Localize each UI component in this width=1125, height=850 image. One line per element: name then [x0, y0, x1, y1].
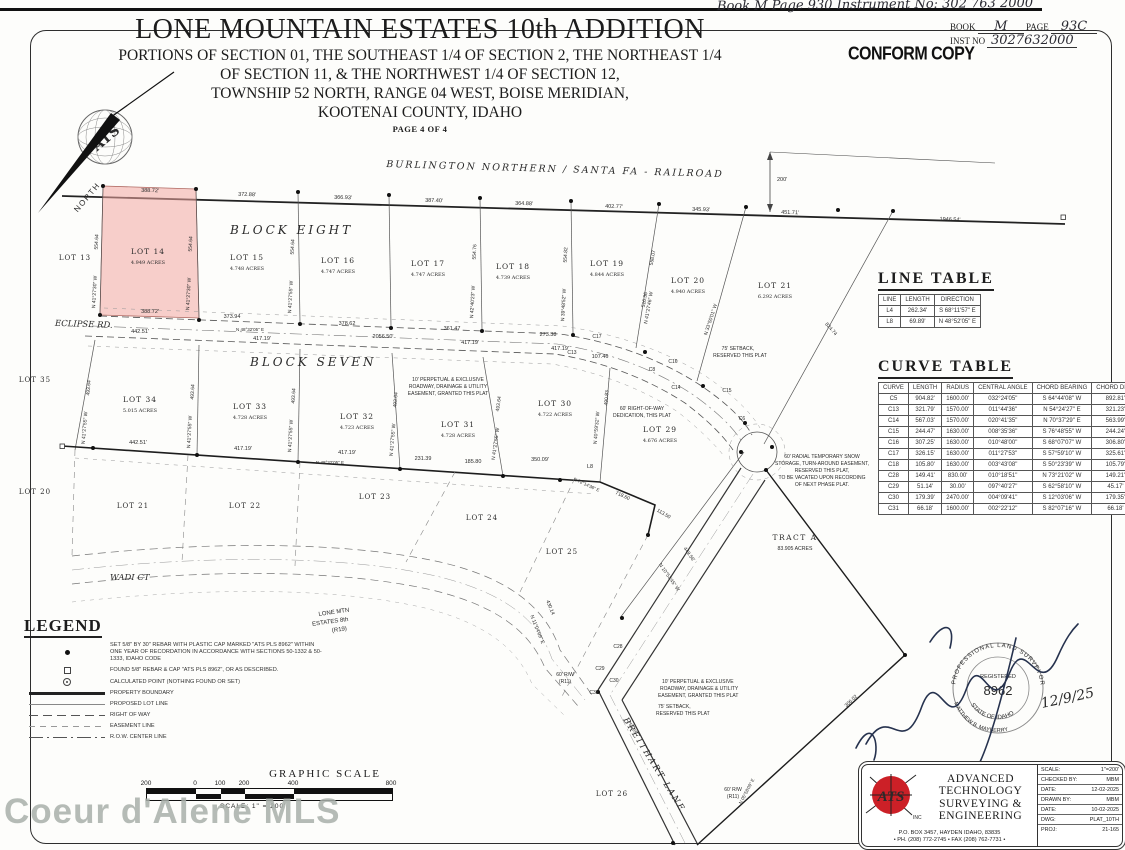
svg-text:EASEMENT, GRANTED THIS PLAT: EASEMENT, GRANTED THIS PLAT	[408, 391, 488, 397]
table-cell: 51.14'	[908, 482, 941, 493]
svg-text:N 41°27'55" W: N 41°27'55" W	[389, 423, 398, 456]
legend-item-text: EASEMENT LINE	[110, 723, 324, 730]
property-boundary-south	[62, 446, 655, 535]
table-cell: 020°41'35"	[974, 416, 1032, 427]
table-cell: 262.34'	[901, 306, 934, 317]
svg-text:N 41°27'55" W: N 41°27'55" W	[81, 411, 90, 444]
svg-text:STORAGE, TURN-AROUND EASEMENT,: STORAGE, TURN-AROUND EASEMENT,	[775, 461, 869, 467]
curve-labels: C17 C13 C16 C8 C14 C15 C6 C28 C29 C30 C3…	[567, 334, 745, 696]
svg-text:417.19': 417.19'	[461, 340, 479, 346]
svg-text:C29: C29	[595, 666, 604, 672]
svg-text:417.19': 417.19'	[234, 446, 252, 452]
svg-text:493.64: 493.64	[190, 384, 197, 400]
legend-item-text: RIGHT OF WAY	[110, 712, 324, 719]
stamp-state: STATE OF IDAHO	[969, 702, 1015, 721]
table-cell: 563.99'	[1092, 416, 1125, 427]
svg-text:LOT 13: LOT 13	[59, 254, 91, 262]
svg-text:(R11): (R11)	[727, 794, 739, 800]
table-header: RADIUS	[942, 383, 974, 394]
svg-text:EASEMENT, GRANTED THIS PLAT: EASEMENT, GRANTED THIS PLAT	[658, 693, 738, 699]
table-cell: C16	[879, 438, 909, 449]
svg-text:N 72°14'36" E: N 72°14'36" E	[573, 476, 601, 492]
svg-text:N 40°59'32" W: N 40°59'32" W	[593, 411, 602, 444]
snow-storage-note: 60' RADIAL TEMPORARY SNOW STORAGE, TURN-…	[775, 454, 869, 488]
svg-text:378.62: 378.62	[339, 321, 356, 327]
block-seven-lot-lines	[75, 340, 744, 618]
table-row: C15244.47'1630.00'008°35'36"S 76°48'55" …	[879, 427, 1125, 438]
table-cell: 306.80'	[1092, 438, 1125, 449]
table-cell: N 54°24'27" E	[1032, 405, 1092, 416]
table-cell: 1630.00'	[942, 427, 974, 438]
table-cell: 567.03'	[908, 416, 941, 427]
svg-text:LOT 15: LOT 15	[230, 253, 264, 262]
svg-text:LOT 29: LOT 29	[643, 425, 677, 434]
svg-text:LOT 34: LOT 34	[123, 395, 157, 404]
svg-text:417.19': 417.19'	[253, 336, 271, 342]
table-cell: 010°48'00"	[974, 438, 1032, 449]
svg-text:LOT 19: LOT 19	[590, 259, 624, 268]
tract-a-label: TRACT A	[772, 533, 817, 542]
table-cell: S 68°07'07" W	[1032, 438, 1092, 449]
svg-text:LOT 21: LOT 21	[117, 502, 149, 510]
table-row: C2951.14'30.00'097°40'27"S 62°58'10" W45…	[879, 482, 1125, 493]
table-cell: 1600.00'	[942, 394, 974, 405]
table-cell: 149.21'	[1092, 471, 1125, 482]
block-seven-label: BLOCK SEVEN	[249, 355, 377, 369]
field-value: 1"=200'	[1101, 767, 1119, 773]
table-header-row: LINE LENGTH DIRECTION	[879, 295, 981, 306]
table-cell: 179.35'	[1092, 493, 1125, 504]
graphic-scale-ticks: 200 0 100 200 400 800	[140, 780, 420, 788]
svg-text:4.747 ACRES: 4.747 ACRES	[321, 269, 356, 275]
svg-text:4.739 ACRES: 4.739 ACRES	[496, 275, 531, 281]
table-cell: 66.18'	[1092, 504, 1125, 515]
svg-text:4.949 ACRES: 4.949 ACRES	[131, 260, 166, 266]
surveyor-signature	[856, 624, 1078, 762]
found-rebar-square-icon	[64, 667, 71, 674]
svg-text:LOT 20: LOT 20	[19, 488, 51, 496]
svg-text:10' PERPETUAL & EXCLUSIVE: 10' PERPETUAL & EXCLUSIVE	[662, 679, 734, 685]
svg-text:417.19': 417.19'	[551, 346, 569, 352]
svg-text:DEDICATION, THIS PLAT: DEDICATION, THIS PLAT	[613, 413, 671, 419]
lot-labels: LOT 144.949 ACRES LOT 154.748 ACRES LOT …	[123, 247, 793, 444]
svg-text:4.844 ACRES: 4.844 ACRES	[590, 272, 625, 278]
svg-text:LOT 18: LOT 18	[496, 262, 530, 271]
svg-text:C28: C28	[613, 644, 622, 650]
table-cell: 66.18'	[908, 504, 941, 515]
field-value: 21-165	[1102, 827, 1119, 833]
svg-text:493.64: 493.64	[85, 380, 92, 396]
svg-text:345.93': 345.93'	[692, 207, 710, 214]
signature-date: 12/9/25	[1040, 685, 1096, 712]
svg-text:75' SETBACK,: 75' SETBACK,	[722, 346, 755, 352]
set-rebar-dot-icon	[65, 650, 70, 655]
table-cell: C31	[879, 504, 909, 515]
svg-text:4.728 ACRES: 4.728 ACRES	[233, 415, 268, 421]
scale-tick: 200	[141, 780, 152, 787]
dimension-labels-mid: 388.72' 373.94 378.62 361.47 273.38 442.…	[131, 309, 608, 360]
railroad-line	[62, 196, 1065, 224]
table-cell: 010°18'51"	[974, 471, 1032, 482]
svg-text:824.74: 824.74	[823, 322, 838, 338]
table-cell: 003°43'08"	[974, 460, 1032, 471]
table-cell: 830.00'	[942, 471, 974, 482]
field-value: MBM	[1106, 797, 1119, 803]
svg-text:554.64: 554.64	[290, 239, 297, 255]
table-cell: 2470.00'	[942, 493, 974, 504]
svg-text:RESERVED THIS PLAT: RESERVED THIS PLAT	[713, 353, 767, 359]
table-cell: 69.89'	[901, 317, 934, 328]
table-header: CURVE	[879, 383, 909, 394]
easement-note-1: 10' PERPETUAL & EXCLUSIVE ROADWAY, DRAIN…	[408, 377, 488, 397]
svg-text:60' RADIAL TEMPORARY SNOW: 60' RADIAL TEMPORARY SNOW	[784, 454, 860, 460]
svg-text:RESERVED THIS PLAT: RESERVED THIS PLAT	[656, 711, 710, 717]
svg-text:N 11°04'09" E: N 11°04'09" E	[528, 614, 545, 645]
mls-watermark: Coeur d'Alene MLS	[4, 792, 340, 832]
svg-text:554.64: 554.64	[94, 234, 101, 250]
legend-title: LEGEND	[24, 616, 102, 638]
found-monument-square	[60, 444, 65, 449]
svg-text:N 41°27'55" W: N 41°27'55" W	[186, 415, 194, 448]
svg-text:N 41°27'55" W: N 41°27'55" W	[287, 419, 295, 452]
surveyor-stamp: PROFESSIONAL LAND SURVEYOR STATE OF IDAH…	[951, 643, 1045, 734]
curve-table-title: CURVE TABLE	[878, 358, 1013, 379]
table-cell: S 57°59'10" W	[1032, 449, 1092, 460]
table-cell: 326.15'	[908, 449, 941, 460]
svg-text:C17: C17	[592, 334, 601, 340]
field-label: DWG:	[1041, 817, 1056, 823]
table-row: C17326.15'1630.00'011°27'53"S 57°59'10" …	[879, 449, 1125, 460]
svg-text:ROADWAY, DRAINAGE & UTILITY: ROADWAY, DRAINAGE & UTILITY	[660, 686, 739, 692]
table-header-row: CURVE LENGTH RADIUS CENTRAL ANGLE CHORD …	[879, 383, 1125, 394]
table-cell: 1630.00'	[942, 438, 974, 449]
svg-text:(R11): (R11)	[559, 679, 571, 685]
table-header: DIRECTION	[934, 295, 980, 306]
easement-line-swatch	[29, 726, 105, 727]
svg-text:LOT 16: LOT 16	[321, 256, 355, 265]
svg-text:1946.54': 1946.54'	[939, 217, 960, 224]
phone-line: • PH. (208) 772-2745 • FAX (208) 762-773…	[862, 837, 1037, 844]
table-cell: 1630.00'	[942, 449, 974, 460]
svg-text:4.940 ACRES: 4.940 ACRES	[671, 289, 706, 295]
company-name: ADVANCED TECHNOLOGY SURVEYING & ENGINEER…	[924, 773, 1037, 823]
table-cell: 1630.00'	[942, 460, 974, 471]
eclipse-rd-label: ECLIPSE RD.	[54, 319, 113, 331]
svg-text:373.94: 373.94	[224, 314, 241, 320]
field-label: DATE:	[1041, 787, 1056, 793]
legend: LEGEND SET 5/8" BY 30" REBAR WITH PLASTI…	[24, 616, 324, 745]
table-cell: C13	[879, 405, 909, 416]
legend-item-text: SET 5/8" BY 30" REBAR WITH PLASTIC CAP M…	[110, 642, 324, 663]
table-cell: N 73°21'02" W	[1032, 471, 1092, 482]
table-cell: S 76°48'55" W	[1032, 427, 1092, 438]
table-row: C3166.18'1600.00'002°22'12"S 82°07'16" W…	[879, 504, 1125, 515]
breithart-lane-label: BREITHART LANE	[620, 715, 687, 814]
svg-text:LOT 30: LOT 30	[538, 399, 572, 408]
svg-text:60' R/W: 60' R/W	[724, 787, 742, 793]
svg-text:558.07: 558.07	[649, 250, 658, 266]
table-cell: 892.81'	[1092, 394, 1125, 405]
table-header: LENGTH	[901, 295, 934, 306]
table-row: L4262.34'S 68°11'57" E	[879, 306, 981, 317]
scale-tick: 200	[239, 780, 250, 787]
svg-text:10' PERPETUAL & EXCLUSIVE: 10' PERPETUAL & EXCLUSIVE	[412, 377, 484, 383]
svg-text:LOT 21: LOT 21	[758, 281, 792, 290]
svg-text:361.47: 361.47	[444, 326, 461, 332]
table-row: C14567.03'1570.00'020°41'35"N 70°37'29" …	[879, 416, 1125, 427]
row-dedication-note: 60' RIGHT-OF-WAY DEDICATION, THIS PLAT	[613, 406, 671, 419]
svg-text:6.292 ACRES: 6.292 ACRES	[758, 294, 793, 300]
table-cell: 032°24'05"	[974, 394, 1032, 405]
block-eight-label: BLOCK EIGHT	[229, 223, 353, 237]
table-cell: 097°40'27"	[974, 482, 1032, 493]
svg-text:350.09': 350.09'	[531, 457, 549, 463]
proposed-lot-line-swatch	[29, 704, 105, 705]
svg-text:493.64: 493.64	[392, 392, 399, 408]
table-cell: S 50°23'39" W	[1032, 460, 1092, 471]
title-block-fields: SCALE:1"=200' CHECKED BY:MBM DATE:12-02-…	[1037, 765, 1122, 846]
table-cell: C5	[879, 394, 909, 405]
table-cell: 244.24'	[1092, 427, 1125, 438]
table-row: C28149.41'830.00'010°18'51"N 73°21'02" W…	[879, 471, 1125, 482]
scale-tick: 100	[215, 780, 226, 787]
svg-text:4.723 ACRES: 4.723 ACRES	[340, 425, 375, 431]
svg-text:LOT 17: LOT 17	[411, 259, 445, 268]
svg-text:554.64: 554.64	[188, 236, 195, 252]
tract-a-acres: 83.905 ACRES	[778, 546, 813, 552]
field-value: 12-02-2025	[1091, 787, 1119, 793]
table-cell: C28	[879, 471, 909, 482]
right-of-way-swatch	[29, 715, 105, 716]
svg-text:LOT 20: LOT 20	[671, 276, 705, 285]
svg-text:N 42°40'23" W: N 42°40'23" W	[469, 285, 477, 318]
table-cell: 004°09'41"	[974, 493, 1032, 504]
svg-text:718.60: 718.60	[614, 490, 631, 502]
svg-text:451.71': 451.71'	[781, 210, 799, 217]
table-cell: 307.25'	[908, 438, 941, 449]
table-cell: S 82°07'16" W	[1032, 504, 1092, 515]
svg-text:364.88': 364.88'	[515, 201, 533, 208]
table-cell: L8	[879, 317, 901, 328]
svg-text:4.748 ACRES: 4.748 ACRES	[230, 266, 265, 272]
table-cell: 011°27'53"	[974, 449, 1032, 460]
svg-text:388.72': 388.72'	[141, 188, 159, 195]
ats-logo-letters: ATS	[877, 789, 905, 805]
stamp-registered: REGISTERED	[980, 674, 1016, 680]
table-cell: 1570.00'	[942, 405, 974, 416]
svg-text:LOT 32: LOT 32	[340, 412, 374, 421]
svg-text:107.46: 107.46	[592, 354, 609, 360]
line-table-grid: LINE LENGTH DIRECTION L4262.34'S 68°11'5…	[878, 294, 981, 328]
misc-dimension-labels: 449.56' N 10°53'45" W 718.60 N 72°14'36"…	[528, 476, 859, 804]
svg-text:LOT 23: LOT 23	[359, 493, 391, 501]
field-value: PLAT_10TH	[1090, 817, 1119, 823]
svg-text:185.80: 185.80	[465, 459, 482, 465]
breithart-lane-road	[598, 424, 785, 845]
table-cell: 149.41'	[908, 471, 941, 482]
curve-table-grid: CURVE LENGTH RADIUS CENTRAL ANGLE CHORD …	[878, 382, 1125, 515]
svg-text:306.02: 306.02	[844, 694, 859, 709]
table-cell: 45.17'	[1092, 482, 1125, 493]
table-cell: C30	[879, 493, 909, 504]
table-cell: 244.47'	[908, 427, 941, 438]
svg-text:372.88': 372.88'	[238, 192, 256, 199]
svg-text:LOT 25: LOT 25	[546, 548, 578, 556]
graphic-scale-title: GRAPHIC SCALE	[230, 768, 420, 780]
table-row: C18105.80'1630.00'003°43'08"S 50°23'39" …	[879, 460, 1125, 471]
svg-text:554.76: 554.76	[472, 244, 479, 260]
scale-tick: 800	[386, 780, 397, 787]
svg-text:LOT 33: LOT 33	[233, 402, 267, 411]
field-label: PROJ:	[1041, 827, 1057, 833]
table-cell: 008°35'36"	[974, 427, 1032, 438]
railroad-label: BURLINGTON NORTHERN / SANTA FA - RAILROA…	[385, 159, 724, 180]
table-header: CENTRAL ANGLE	[974, 383, 1032, 394]
table-cell: 904.82'	[908, 394, 941, 405]
table-cell: C15	[879, 427, 909, 438]
svg-text:273.38: 273.38	[540, 332, 557, 338]
svg-text:490.83: 490.83	[603, 390, 610, 406]
svg-text:366.93': 366.93'	[334, 195, 352, 202]
table-cell: 325.61'	[1092, 449, 1125, 460]
row-center-line-swatch	[29, 737, 105, 738]
ats-logo: ATS INC.	[862, 773, 924, 823]
svg-text:LOT 22: LOT 22	[229, 502, 261, 510]
svg-text:N 39°48'52" W: N 39°48'52" W	[560, 288, 568, 321]
svg-text:C30: C30	[609, 678, 618, 684]
table-header: CHORD DIST.	[1092, 383, 1125, 394]
svg-text:N 48°32'05" E: N 48°32'05" E	[236, 327, 264, 332]
legend-item-text: PROPOSED LOT LINE	[110, 701, 324, 708]
svg-text:RESERVED THIS PLAT,: RESERVED THIS PLAT,	[795, 468, 849, 474]
easement-note-2: 10' PERPETUAL & EXCLUSIVE ROADWAY, DRAIN…	[656, 679, 739, 717]
company-address: P.O. BOX 3457, HAYDEN IDAHO, 83835 • PH.…	[862, 830, 1037, 846]
table-cell: N 48°52'05" E	[934, 317, 980, 328]
svg-text:ROADWAY, DRAINAGE & UTILITY: ROADWAY, DRAINAGE & UTILITY	[409, 384, 488, 390]
wadi-ct-label: WADI CT	[110, 573, 151, 583]
svg-text:C15: C15	[722, 388, 731, 394]
table-cell: 321.79'	[908, 405, 941, 416]
svg-text:449.56': 449.56'	[682, 546, 696, 563]
svg-text:4.722 ACRES: 4.722 ACRES	[538, 412, 573, 418]
svg-text:493.64: 493.64	[495, 396, 503, 412]
svg-text:4.728 ACRES: 4.728 ACRES	[441, 433, 476, 439]
table-cell: 321.23'	[1092, 405, 1125, 416]
svg-text:60' RIGHT-OF-WAY: 60' RIGHT-OF-WAY	[620, 406, 665, 412]
table-cell: S 64°44'08" W	[1032, 394, 1092, 405]
svg-text:402.77': 402.77'	[605, 204, 623, 211]
table-cell: 011°44'36"	[974, 405, 1032, 416]
legend-item-text: FOUND 5/8" REBAR & CAP "ATS PLS 8962", O…	[110, 667, 324, 674]
scale-tick: 400	[288, 780, 299, 787]
svg-text:554.82: 554.82	[563, 247, 570, 263]
table-header: LENGTH	[908, 383, 941, 394]
table-cell: 179.39'	[908, 493, 941, 504]
table-row: C13321.79'1570.00'011°44'36"N 54°24'27" …	[879, 405, 1125, 416]
table-cell: 30.00'	[942, 482, 974, 493]
table-cell: S 62°58'10" W	[1032, 482, 1092, 493]
svg-text:388.72': 388.72'	[141, 309, 159, 315]
svg-text:N 41°27'30" W: N 41°27'30" W	[91, 275, 99, 308]
table-cell: 105.79'	[1092, 460, 1125, 471]
table-cell: C14	[879, 416, 909, 427]
svg-text:C8: C8	[649, 367, 656, 373]
svg-text:L8: L8	[587, 464, 593, 470]
table-cell: S 68°11'57" E	[934, 306, 980, 317]
table-cell: L4	[879, 306, 901, 317]
table-cell: 105.80'	[908, 460, 941, 471]
svg-text:C6: C6	[739, 416, 746, 422]
svg-text:C13: C13	[567, 350, 576, 356]
plat-document-page: { "header": { "handwritten_top": "Book M…	[0, 0, 1125, 847]
property-boundary-swatch	[29, 692, 105, 695]
table-cell: C18	[879, 460, 909, 471]
svg-text:C31: C31	[589, 690, 598, 696]
table-cell: 1600.00'	[942, 504, 974, 515]
line-table: LINE TABLE LINE LENGTH DIRECTION L4262.3…	[878, 270, 994, 328]
svg-text:231.39: 231.39	[415, 456, 432, 462]
svg-text:387.40': 387.40'	[425, 198, 443, 205]
legend-item-text: CALCULATED POINT (NOTHING FOUND OR SET)	[110, 679, 324, 686]
edge-bearing-labels-b8: 554.64 N 41°27'30" W 554.64 N 41°27'30" …	[91, 234, 838, 337]
svg-text:442.51': 442.51'	[131, 329, 149, 335]
calculated-point-icon	[63, 678, 71, 686]
svg-text:5.015 ACRES: 5.015 ACRES	[123, 408, 158, 414]
svg-text:113.50: 113.50	[656, 508, 672, 521]
svg-text:430.14: 430.14	[544, 599, 555, 616]
svg-text:493.64: 493.64	[291, 388, 298, 404]
curve-table: CURVE TABLE CURVE LENGTH RADIUS CENTRAL …	[878, 358, 1125, 515]
legend-item-text: PROPERTY BOUNDARY	[110, 690, 324, 697]
field-label: SCALE:	[1041, 767, 1060, 773]
svg-text:LOT 31: LOT 31	[441, 420, 475, 429]
table-header: CHORD BEARING	[1032, 383, 1092, 394]
svg-text:(R19): (R19)	[332, 626, 348, 634]
field-value: MBM	[1106, 777, 1119, 783]
table-cell: C17	[879, 449, 909, 460]
surveyor-title-block: ATS INC. ADVANCED TECHNOLOGY SURVEYING &…	[858, 761, 1125, 850]
svg-text:LOT 35: LOT 35	[19, 376, 51, 384]
field-label: DRAWN BY:	[1041, 797, 1071, 803]
table-row: C30179.39'2470.00'004°09'41"S 12°03'06" …	[879, 493, 1125, 504]
svg-text:LOT 24: LOT 24	[466, 514, 498, 522]
ats-logo-inc: INC.	[913, 815, 922, 821]
field-label: DATE:	[1041, 807, 1056, 813]
table-cell: 002°22'12"	[974, 504, 1032, 515]
legend-item-text: R.O.W. CENTER LINE	[110, 734, 324, 741]
svg-text:LOT 14: LOT 14	[131, 247, 165, 256]
svg-text:4.747 ACRES: 4.747 ACRES	[411, 272, 446, 278]
svg-text:442.51': 442.51'	[129, 440, 147, 446]
svg-text:75' SETBACK,: 75' SETBACK,	[658, 704, 691, 710]
scale-tick: 0	[193, 780, 197, 787]
table-cell: 1570.00'	[942, 416, 974, 427]
svg-text:417.19': 417.19'	[338, 450, 356, 456]
svg-text:STATE OF IDAHO: STATE OF IDAHO	[969, 702, 1015, 721]
setback-note-1: 75' SETBACK, RESERVED THIS PLAT	[713, 346, 767, 359]
svg-text:60' R/W: 60' R/W	[556, 672, 574, 678]
table-cell: C29	[879, 482, 909, 493]
table-cell: S 12°03'06" W	[1032, 493, 1092, 504]
address-line: P.O. BOX 3457, HAYDEN IDAHO, 83835	[862, 830, 1037, 837]
table-row: L869.89'N 48°52'05" E	[879, 317, 981, 328]
svg-text:C16: C16	[668, 359, 677, 365]
dim-label: 200'	[777, 177, 787, 183]
svg-text:N 48°32'05" E: N 48°32'05" E	[316, 460, 344, 465]
svg-text:C14: C14	[671, 385, 680, 391]
line-table-title: LINE TABLE	[878, 270, 994, 291]
svg-text:2056.50': 2056.50'	[373, 334, 394, 340]
